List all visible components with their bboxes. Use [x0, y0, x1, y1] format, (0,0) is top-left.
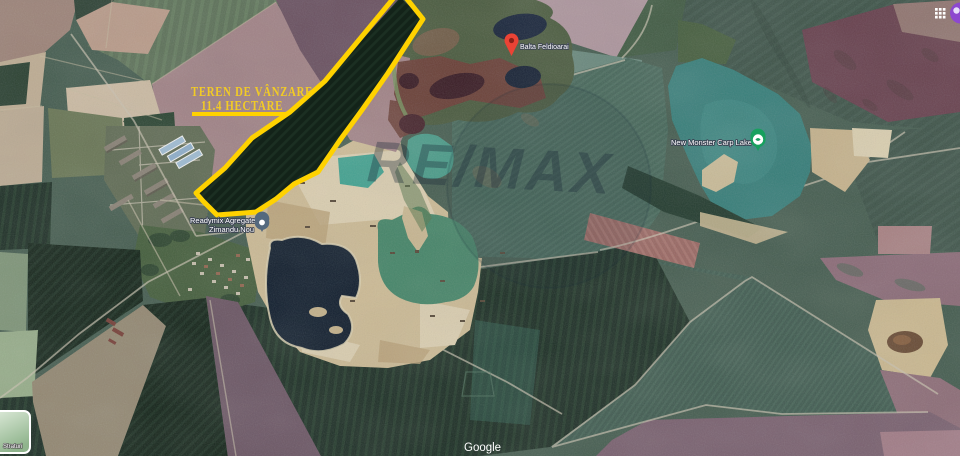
svg-text:Balta Feldioarai: Balta Feldioarai — [520, 44, 569, 51]
svg-text:Readymix Agregate: Readymix Agregate — [190, 216, 255, 225]
svg-text:Google: Google — [464, 442, 501, 454]
svg-text:Zimandu Nou: Zimandu Nou — [209, 225, 254, 234]
svg-text:Straturi: Straturi — [3, 444, 22, 450]
svg-text:11.4 HECTARE: 11.4 HECTARE — [201, 98, 283, 113]
svg-text:RE/MAX: RE/MAX — [366, 129, 616, 207]
svg-text:New Monster Carp Lake: New Monster Carp Lake — [671, 138, 752, 147]
